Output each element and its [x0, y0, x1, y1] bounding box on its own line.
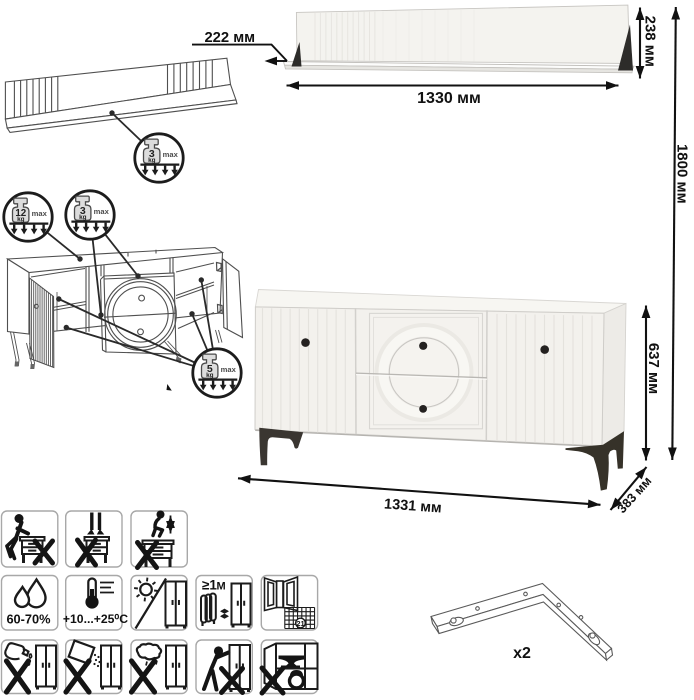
svg-text:max: max: [32, 209, 48, 218]
svg-text:kg: kg: [148, 157, 156, 164]
svg-text:238 мм: 238 мм: [641, 16, 658, 67]
svg-text:max: max: [163, 150, 179, 159]
svg-text:kg: kg: [79, 214, 87, 221]
svg-text:+10...+25⁰C: +10...+25⁰C: [63, 612, 128, 626]
svg-text:1330 мм: 1330 мм: [417, 90, 481, 107]
svg-text:kg: kg: [206, 372, 214, 379]
svg-text:max: max: [221, 365, 237, 374]
svg-text:60-70%: 60-70%: [6, 612, 51, 627]
svg-text:≥1: ≥1: [202, 578, 217, 593]
svg-text:M: M: [217, 581, 226, 593]
svg-text:21: 21: [296, 619, 304, 628]
svg-text:1331 мм: 1331 мм: [383, 496, 442, 516]
svg-text:222 мм: 222 мм: [204, 30, 255, 46]
svg-text:x2: x2: [513, 645, 531, 662]
svg-text:637 мм: 637 мм: [645, 343, 662, 394]
svg-text:383 мм: 383 мм: [614, 473, 654, 516]
svg-text:max: max: [94, 207, 110, 216]
svg-text:kg: kg: [17, 216, 25, 223]
svg-text:1800 мм: 1800 мм: [673, 144, 690, 204]
